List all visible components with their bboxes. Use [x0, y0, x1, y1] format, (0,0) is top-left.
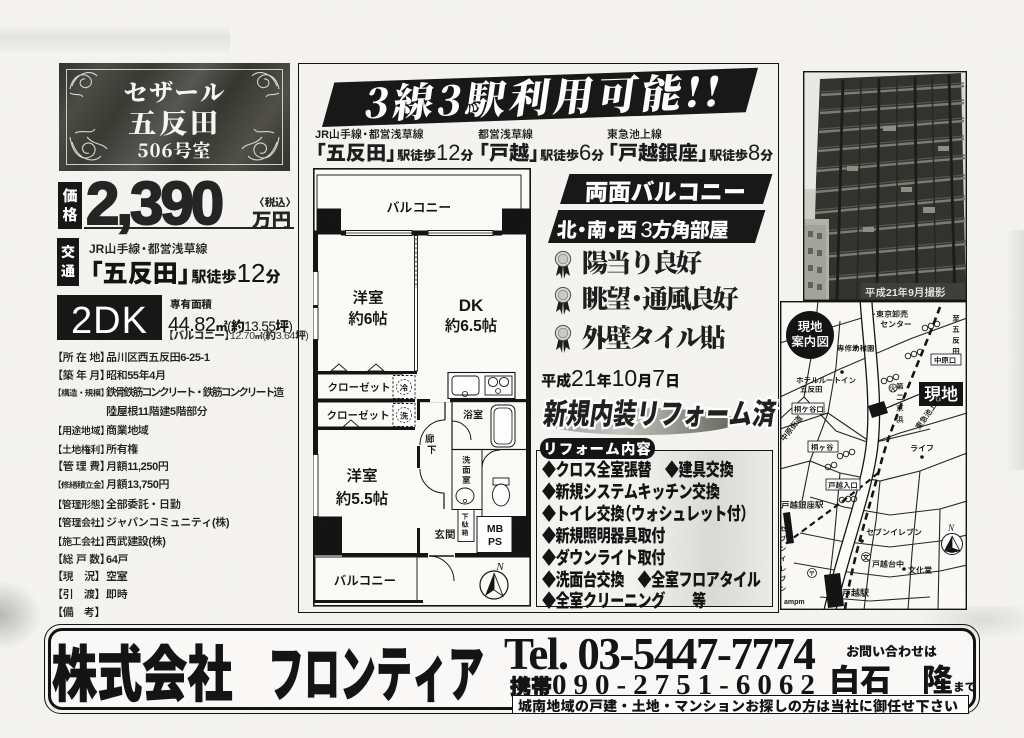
svg-text:洗: 洗 — [400, 410, 409, 422]
svg-text:N: N — [495, 561, 504, 573]
svg-text:第二京浜: 第二京浜 — [895, 381, 906, 425]
svg-text:玄関: 玄関 — [435, 527, 456, 542]
svg-text:戸越台中: 戸越台中 — [872, 559, 904, 570]
svg-text:平成21年9月撮影: 平成21年9月撮影 — [865, 285, 946, 300]
svg-text:約6帖: 約6帖 — [348, 307, 388, 329]
svg-text:ampm: ampm — [784, 597, 805, 607]
svg-text:洋室: 洋室 — [346, 464, 378, 486]
svg-text:箱: 箱 — [461, 528, 469, 538]
svg-text:バルコニー: バルコニー — [386, 197, 451, 216]
svg-text:中原口: 中原口 — [934, 355, 957, 366]
svg-text:五反田: 五反田 — [800, 384, 823, 395]
svg-text:下: 下 — [427, 442, 437, 456]
svg-text:バルコニー: バルコニー — [334, 570, 397, 589]
svg-text:桐ヶ谷: 桐ヶ谷 — [811, 442, 834, 453]
svg-text:ライフ: ライフ — [910, 443, 934, 454]
svg-text:セブンイレブン: セブンイレブン — [866, 527, 922, 538]
svg-text:PS: PS — [488, 534, 502, 549]
svg-text:クローゼット: クローゼット — [328, 380, 391, 395]
svg-text:浴室: 浴室 — [463, 406, 484, 421]
svg-text:室: 室 — [462, 474, 471, 486]
svg-text:〒: 〒 — [809, 569, 816, 579]
svg-text:戸越駅: 戸越駅 — [842, 586, 869, 599]
svg-text:洋室: 洋室 — [352, 286, 384, 308]
svg-text:N: N — [947, 523, 955, 533]
svg-text:クローゼット: クローゼット — [327, 408, 390, 423]
svg-text:桐ケ谷口: 桐ケ谷口 — [794, 404, 824, 415]
svg-text:冷: 冷 — [400, 382, 409, 394]
svg-text:約6.5帖: 約6.5帖 — [445, 314, 498, 336]
svg-text:戸越銀座駅: 戸越銀座駅 — [781, 499, 824, 511]
svg-text:文化堂: 文化堂 — [907, 565, 932, 576]
svg-text:文: 文 — [863, 553, 870, 563]
svg-text:センター: センター — [880, 319, 912, 330]
svg-text:DK: DK — [459, 291, 484, 316]
svg-text:戸越入口: 戸越入口 — [828, 480, 858, 491]
svg-text:約5.5帖: 約5.5帖 — [336, 487, 389, 509]
svg-text:案内図: 案内図 — [791, 331, 829, 350]
